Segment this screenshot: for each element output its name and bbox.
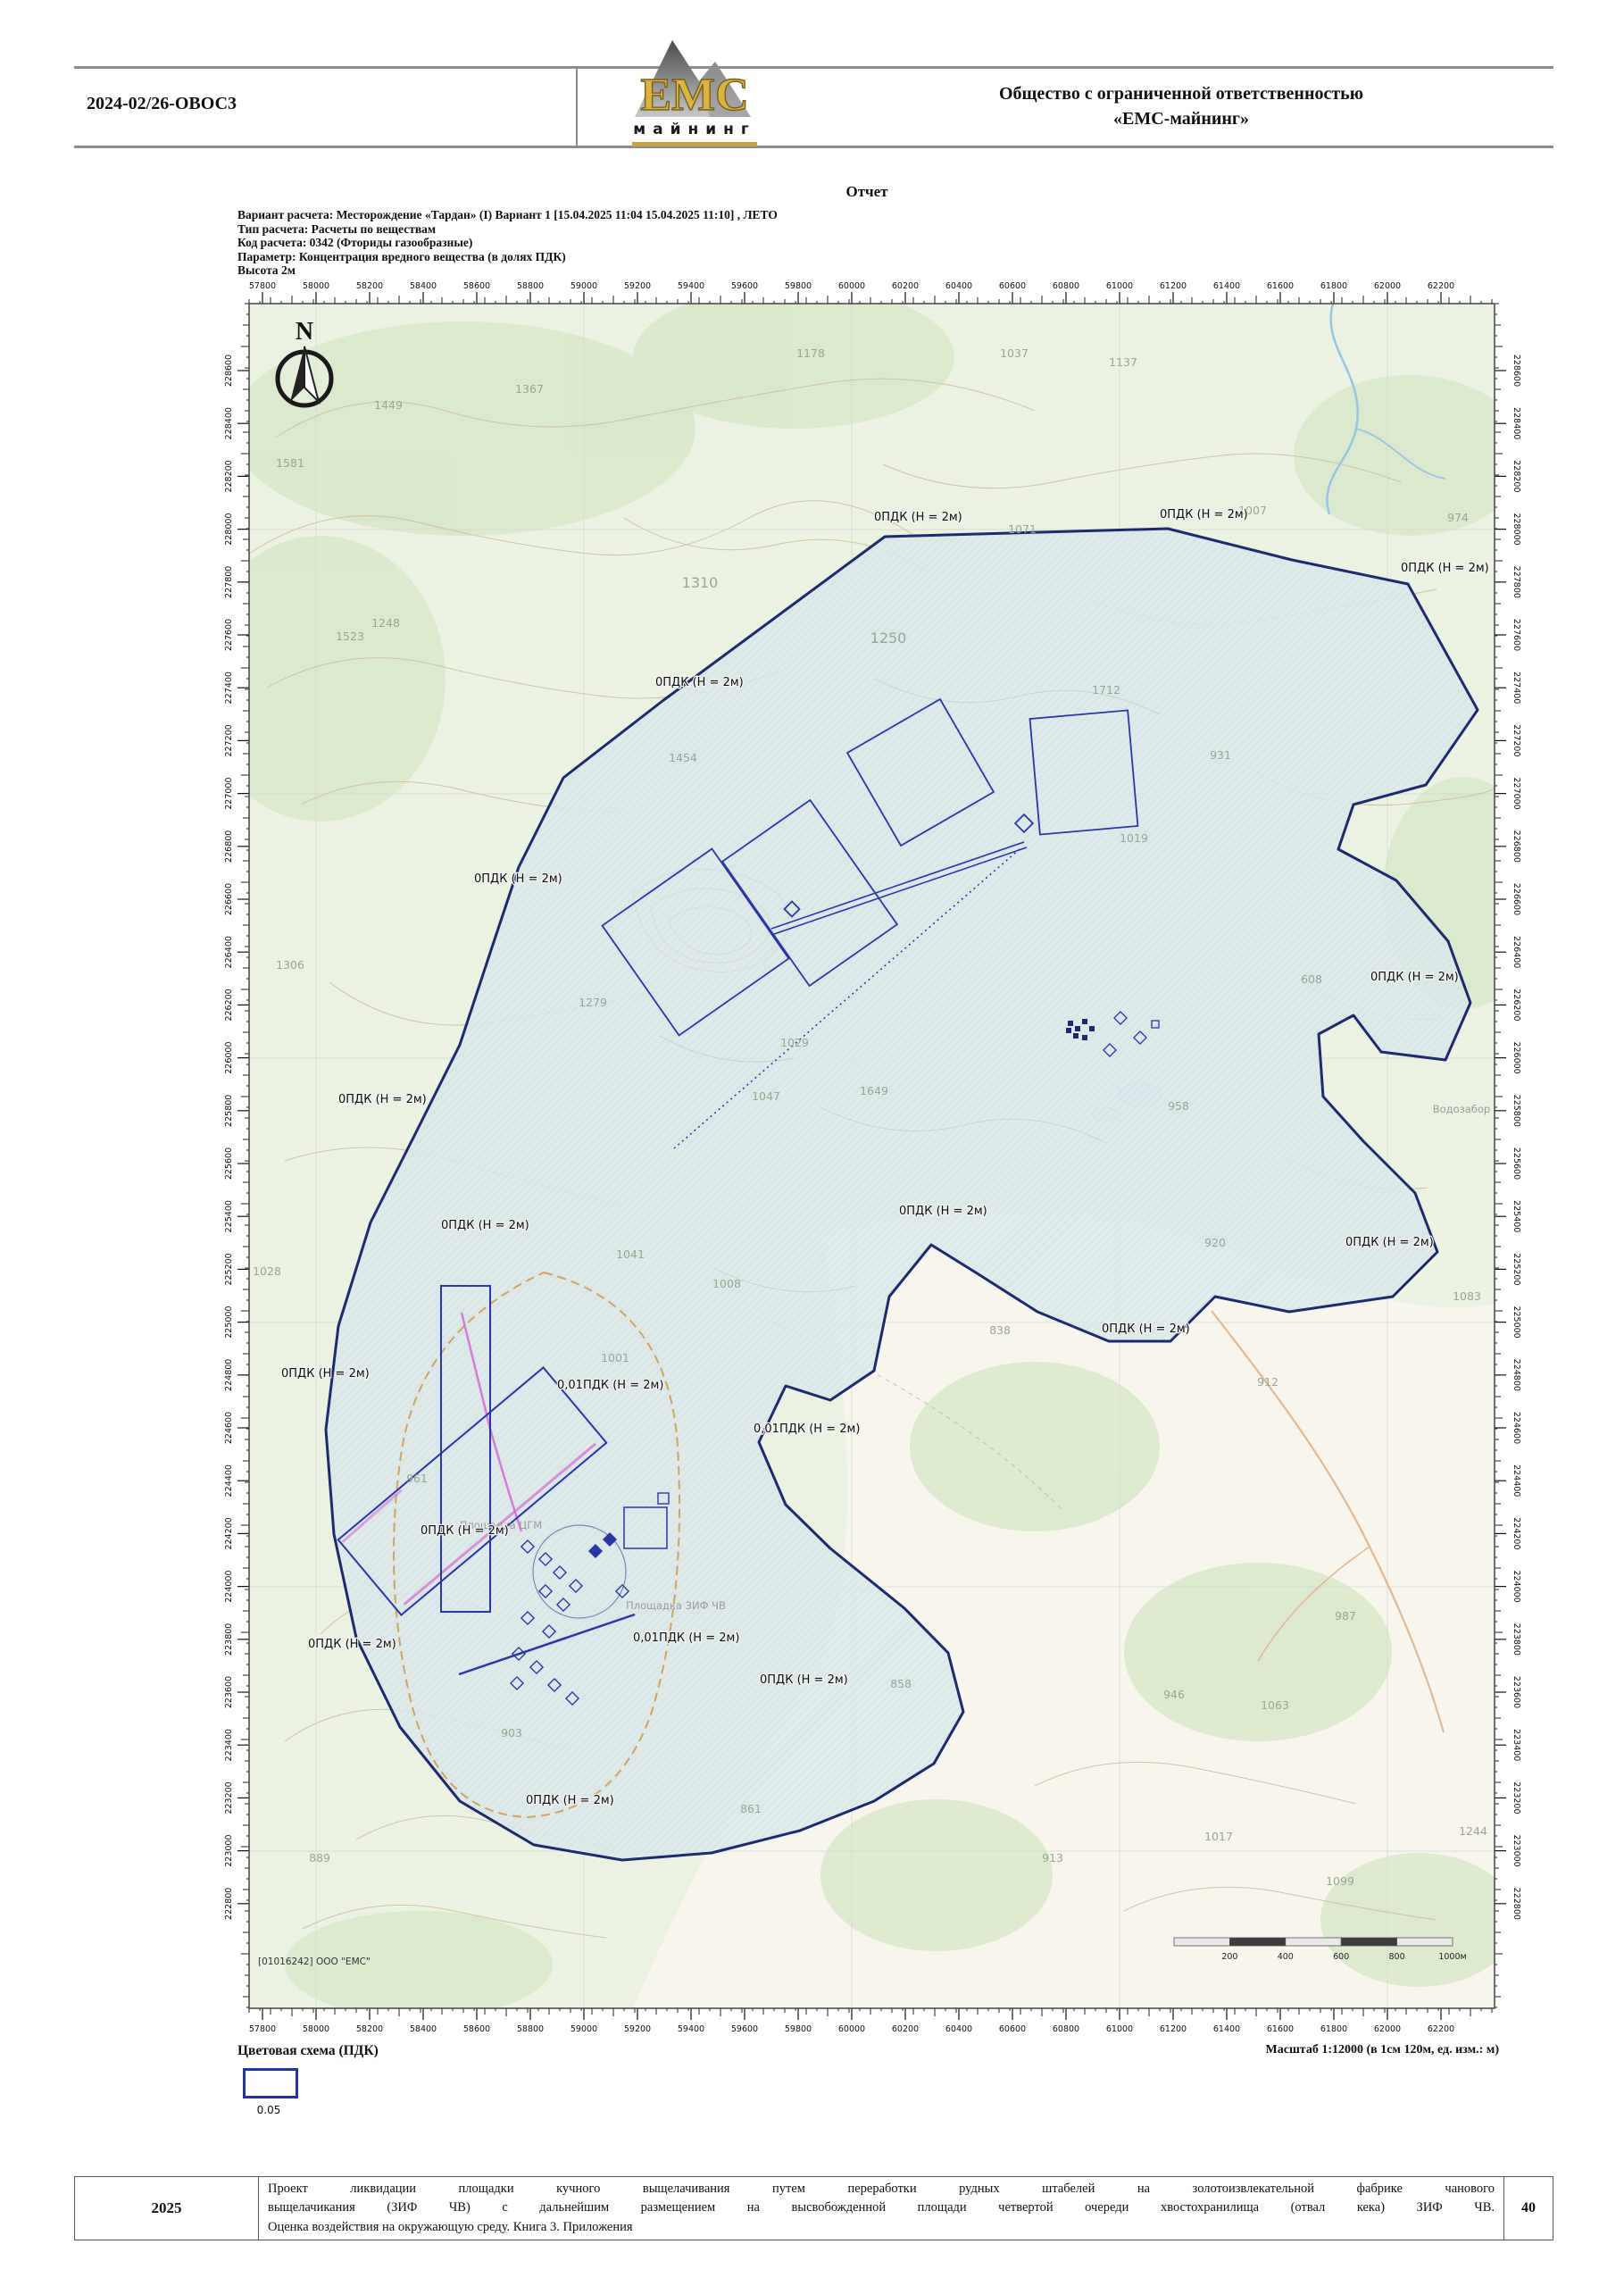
axis-tick-label: 227400 xyxy=(1512,672,1521,704)
legend-swatch xyxy=(243,2068,298,2098)
axis-tick-label: 224200 xyxy=(1512,1517,1521,1549)
axis-tick-label: 227200 xyxy=(224,724,234,756)
axis-tick-label: 223800 xyxy=(1512,1623,1521,1656)
axis-tick-label: 225800 xyxy=(224,1095,234,1127)
axis-tick-label: 227600 xyxy=(1512,619,1521,651)
elevation-label: 1017 xyxy=(1204,1830,1233,1843)
isoline-label: 0,01ПДК (Н = 2м) xyxy=(754,1422,860,1436)
axis-tick-label: 61400 xyxy=(1213,281,1240,291)
isoline-label: 0ПДК (Н = 2м) xyxy=(1370,971,1459,984)
logo-text: ЕМС xyxy=(640,70,748,121)
isoline-label: 0,01ПДК (Н = 2м) xyxy=(557,1379,663,1392)
elevation-label: 1063 xyxy=(1261,1698,1289,1712)
elevation-label: 1712 xyxy=(1092,683,1120,697)
scale-bar-segment xyxy=(1397,1938,1453,1946)
axis-tick-label: 59800 xyxy=(785,281,812,291)
axis-tick-label: 224600 xyxy=(1512,1412,1521,1444)
axis-tick-label: 223000 xyxy=(1512,1834,1521,1866)
axis-tick-label: 60800 xyxy=(1053,281,1079,291)
axis-tick-label: 59000 xyxy=(570,2024,597,2034)
isoline-label: 0ПДК (Н = 2м) xyxy=(1102,1322,1190,1336)
axis-tick-label: 226800 xyxy=(224,830,234,863)
axis-tick-label: 227200 xyxy=(1512,724,1521,756)
param-type: Тип расчета: Расчеты по веществам xyxy=(237,222,778,237)
axis-tick-label: 59200 xyxy=(624,2024,651,2034)
axis-tick-label: 228600 xyxy=(224,355,234,387)
axis-tick-label: 60200 xyxy=(892,2024,919,2034)
axis-tick-label: 227400 xyxy=(224,672,234,704)
isoline-label: 0ПДК (Н = 2м) xyxy=(760,1673,848,1687)
elevation-label: 1310 xyxy=(682,574,719,591)
feature-label: Водозабор xyxy=(1433,1103,1491,1115)
scale-bar-label: 600 xyxy=(1333,1952,1349,1962)
scale-bar-label: 400 xyxy=(1278,1952,1294,1962)
elevation-label: 1028 xyxy=(253,1264,281,1278)
axis-tick-label: 60600 xyxy=(999,281,1026,291)
axis-tick-label: 57800 xyxy=(249,2024,276,2034)
elevation-label: 1037 xyxy=(1000,346,1029,360)
elevation-label: 958 xyxy=(1168,1099,1189,1113)
axis-tick-label: 226200 xyxy=(224,989,234,1021)
elevation-label: 1029 xyxy=(780,1036,809,1049)
axis-tick-label: 226000 xyxy=(224,1041,234,1073)
page-footer: 2025 Проект ликвидации площадки кучного … xyxy=(74,2176,1553,2240)
axis-tick-label: 223600 xyxy=(1512,1676,1521,1708)
elevation-label: 912 xyxy=(1257,1375,1278,1389)
axis-tick-label: 225000 xyxy=(1512,1306,1521,1338)
axis-tick-label: 58000 xyxy=(303,281,329,291)
company-name: Общество с ограниченной ответственностью… xyxy=(878,81,1485,131)
axis-tick-label: 224000 xyxy=(224,1570,234,1602)
axis-tick-label: 223400 xyxy=(1512,1729,1521,1761)
axis-tick-label: 58200 xyxy=(356,2024,383,2034)
elevation-label: 974 xyxy=(1447,511,1469,524)
axis-tick-label: 61000 xyxy=(1106,281,1133,291)
axis-tick-label: 223200 xyxy=(224,1781,234,1814)
axis-tick-label: 59200 xyxy=(624,281,651,291)
axis-tick-label: 60800 xyxy=(1053,2024,1079,2034)
elevation-label: 1008 xyxy=(712,1277,741,1290)
footer-line-1: Проект ликвидации площадки кучного выщел… xyxy=(268,2180,1495,2198)
topographic-map: 5780057800580005800058200582005840058400… xyxy=(205,263,1545,2076)
elevation-label: 913 xyxy=(1042,1851,1063,1865)
scale-bar-segment xyxy=(1174,1938,1229,1946)
axis-tick-label: 225800 xyxy=(1512,1095,1521,1127)
isoline-label: 0ПДК (Н = 2м) xyxy=(308,1638,396,1651)
axis-tick-label: 224000 xyxy=(1512,1570,1521,1602)
axis-tick-label: 223000 xyxy=(224,1834,234,1866)
logo-subtitle: майнинг xyxy=(610,121,779,138)
elevation-label: 931 xyxy=(1210,748,1231,762)
axis-tick-label: 226600 xyxy=(224,883,234,915)
axis-tick-label: 227800 xyxy=(1512,566,1521,598)
axis-tick-label: 60400 xyxy=(945,281,972,291)
logo-gold-bar xyxy=(632,142,757,146)
elevation-label: 1019 xyxy=(1120,831,1148,845)
scale-bar-segment xyxy=(1286,1938,1341,1946)
feature-label: Площадка ЗИФ ЧВ xyxy=(626,1599,726,1612)
axis-tick-label: 228600 xyxy=(1512,355,1521,387)
isoline-label: 0ПДК (Н = 2м) xyxy=(421,1524,509,1538)
axis-tick-label: 59600 xyxy=(731,2024,758,2034)
isoline-label: 0ПДК (Н = 2м) xyxy=(526,1794,614,1807)
axis-tick-label: 59000 xyxy=(570,281,597,291)
isoline-label: 0ПДК (Н = 2м) xyxy=(1345,1236,1434,1249)
axis-tick-label: 60600 xyxy=(999,2024,1026,2034)
axis-tick-label: 61800 xyxy=(1320,2024,1347,2034)
axis-tick-label: 228200 xyxy=(1512,460,1521,492)
axis-tick-label: 224200 xyxy=(224,1517,234,1549)
elevation-label: 1001 xyxy=(601,1351,629,1364)
axis-tick-label: 222800 xyxy=(1512,1888,1521,1920)
scale-bar-segment xyxy=(1229,1938,1285,1946)
dispersion-map: 5780057800580005800058200582005840058400… xyxy=(205,263,1545,2076)
elevation-label: 1306 xyxy=(276,958,304,972)
axis-tick-label: 62200 xyxy=(1428,2024,1454,2034)
isoline-label: 0ПДК (Н = 2м) xyxy=(1160,508,1248,521)
elevation-label: 987 xyxy=(1335,1609,1356,1623)
isoline-label: 0ПДК (Н = 2м) xyxy=(1401,562,1489,575)
axis-tick-label: 228000 xyxy=(224,513,234,545)
elevation-label: 946 xyxy=(1163,1688,1185,1701)
map-scale-text: Масштаб 1:12000 (в 1см 120м, ед. изм.: м… xyxy=(1266,2043,1500,2057)
isoline-label: 0ПДК (Н = 2м) xyxy=(874,511,962,524)
axis-tick-label: 225400 xyxy=(1512,1200,1521,1232)
axis-tick-label: 225000 xyxy=(224,1306,234,1338)
elevation-label: 1449 xyxy=(374,398,403,412)
scale-bar-label: 800 xyxy=(1389,1952,1405,1962)
scale-bar-label: 1000м xyxy=(1438,1952,1466,1962)
document-code: 2024-02/26-ОВОС3 xyxy=(87,94,237,114)
axis-tick-label: 62000 xyxy=(1374,2024,1401,2034)
axis-tick-label: 58800 xyxy=(517,2024,544,2034)
axis-tick-label: 224800 xyxy=(224,1359,234,1391)
elevation-label: 920 xyxy=(1204,1236,1226,1249)
axis-tick-label: 226600 xyxy=(1512,883,1521,915)
elevation-label: 858 xyxy=(890,1677,912,1690)
param-parameter: Параметр: Концентрация вредного вещества… xyxy=(237,250,778,264)
elevation-label: 1250 xyxy=(870,630,907,647)
compass-north-label: N xyxy=(296,318,313,346)
axis-tick-label: 225600 xyxy=(224,1147,234,1180)
axis-tick-label: 223400 xyxy=(224,1729,234,1761)
elevation-label: 1454 xyxy=(669,751,697,764)
axis-tick-label: 227600 xyxy=(224,619,234,651)
axis-tick-label: 58000 xyxy=(303,2024,329,2034)
axis-tick-label: 228400 xyxy=(1512,407,1521,439)
isoline-label: 0ПДК (Н = 2м) xyxy=(474,872,562,886)
axis-tick-label: 227000 xyxy=(1512,777,1521,809)
axis-tick-label: 59600 xyxy=(731,281,758,291)
axis-tick-label: 223800 xyxy=(224,1623,234,1656)
map-credit: [01016242] ООО "ЕМС" xyxy=(258,1956,371,1967)
elevation-label: 1649 xyxy=(860,1084,888,1097)
isoline-label: 0,01ПДК (Н = 2м) xyxy=(633,1631,739,1645)
company-line1: Общество с ограниченной ответственностью xyxy=(878,81,1485,106)
axis-tick-label: 58600 xyxy=(463,281,490,291)
axis-tick-label: 223200 xyxy=(1512,1781,1521,1814)
axis-tick-label: 61200 xyxy=(1160,2024,1187,2034)
axis-tick-label: 225200 xyxy=(1512,1253,1521,1285)
axis-tick-label: 58400 xyxy=(410,2024,437,2034)
axis-tick-label: 61600 xyxy=(1267,281,1294,291)
axis-tick-label: 225400 xyxy=(224,1200,234,1232)
elevation-label: 608 xyxy=(1301,972,1322,986)
axis-tick-label: 58200 xyxy=(356,281,383,291)
axis-tick-label: 225200 xyxy=(224,1253,234,1285)
axis-tick-label: 228200 xyxy=(224,460,234,492)
axis-tick-label: 62000 xyxy=(1374,281,1401,291)
elevation-label: 889 xyxy=(309,1851,330,1865)
axis-tick-label: 225600 xyxy=(1512,1147,1521,1180)
axis-tick-label: 223600 xyxy=(224,1676,234,1708)
axis-tick-label: 60000 xyxy=(838,281,865,291)
isoline-label: 0ПДК (Н = 2м) xyxy=(441,1219,529,1232)
axis-tick-label: 59400 xyxy=(678,281,704,291)
elevation-label: 1099 xyxy=(1326,1874,1354,1888)
axis-tick-label: 58800 xyxy=(517,281,544,291)
axis-tick-label: 60200 xyxy=(892,281,919,291)
axis-tick-label: 59800 xyxy=(785,2024,812,2034)
company-logo: ЕМС майнинг xyxy=(610,35,779,151)
axis-tick-label: 227800 xyxy=(224,566,234,598)
elevation-label: 838 xyxy=(989,1323,1011,1337)
elevation-label: 1041 xyxy=(616,1247,645,1261)
elevation-label: 1047 xyxy=(752,1089,780,1103)
axis-tick-label: 224400 xyxy=(1512,1464,1521,1497)
param-code: Код расчета: 0342 (Фториды газообразные) xyxy=(237,236,778,250)
axis-tick-label: 224400 xyxy=(224,1464,234,1497)
scale-bar-label: 200 xyxy=(1221,1952,1237,1962)
axis-tick-label: 61400 xyxy=(1213,2024,1240,2034)
page-number: 40 xyxy=(1504,2177,1553,2240)
elevation-label: 1248 xyxy=(371,616,400,630)
elevation-label: 961 xyxy=(406,1472,428,1485)
report-page: 2024-02/26-ОВОС3 ЕМС майнинг Общество с … xyxy=(0,0,1624,2286)
elevation-label: 1244 xyxy=(1459,1824,1487,1838)
elevation-label: 1083 xyxy=(1453,1289,1481,1303)
elevation-label: 1581 xyxy=(276,456,304,470)
scale-bar-segment xyxy=(1341,1938,1396,1946)
elevation-label: 1137 xyxy=(1109,355,1137,369)
page-header: 2024-02/26-ОВОС3 ЕМС майнинг Общество с … xyxy=(74,66,1553,148)
elevation-label: 1279 xyxy=(579,996,607,1009)
axis-tick-label: 60000 xyxy=(838,2024,865,2034)
axis-tick-label: 228400 xyxy=(224,407,234,439)
elevation-label: 903 xyxy=(501,1726,522,1740)
elevation-label: 1178 xyxy=(796,346,825,360)
legend-title: Цветовая схема (ПДК) xyxy=(237,2043,379,2059)
axis-tick-label: 224600 xyxy=(224,1412,234,1444)
isoline-label: 0ПДК (Н = 2м) xyxy=(338,1093,427,1106)
axis-tick-label: 59400 xyxy=(678,2024,704,2034)
footer-line-2: выщелачикания (ЗИФ ЧВ) с дальнейшим разм… xyxy=(268,2198,1495,2217)
footer-line-3: Оценка воздействия на окружающую среду. … xyxy=(268,2218,1495,2237)
isoline-label: 0ПДК (Н = 2м) xyxy=(899,1205,987,1218)
axis-tick-label: 61000 xyxy=(1106,2024,1133,2034)
axis-tick-label: 224800 xyxy=(1512,1359,1521,1391)
axis-tick-label: 226000 xyxy=(1512,1041,1521,1073)
axis-tick-label: 226400 xyxy=(1512,936,1521,968)
footer-project-description: Проект ликвидации площадки кучного выщел… xyxy=(259,2177,1504,2240)
axis-tick-label: 58400 xyxy=(410,281,437,291)
param-variant: Вариант расчета: Месторождение «Тардан» … xyxy=(237,208,778,222)
axis-tick-label: 61600 xyxy=(1267,2024,1294,2034)
mountain-logo-icon: ЕМС xyxy=(610,35,779,121)
axis-tick-label: 57800 xyxy=(249,281,276,291)
header-divider xyxy=(576,69,578,146)
footer-year: 2025 xyxy=(75,2177,259,2240)
axis-tick-label: 226200 xyxy=(1512,989,1521,1021)
axis-tick-label: 62200 xyxy=(1428,281,1454,291)
elevation-label: 1367 xyxy=(515,382,544,396)
axis-tick-label: 58600 xyxy=(463,2024,490,2034)
legend-value: 0.05 xyxy=(237,2104,300,2116)
axis-tick-label: 61800 xyxy=(1320,281,1347,291)
color-scheme-legend: Цветовая схема (ПДК) 0.05 xyxy=(237,2043,379,2116)
elevation-label: 1071 xyxy=(1008,522,1037,536)
elevation-label: 861 xyxy=(740,1802,762,1815)
axis-tick-label: 222800 xyxy=(224,1888,234,1920)
axis-tick-label: 61200 xyxy=(1160,281,1187,291)
axis-tick-label: 228000 xyxy=(1512,513,1521,545)
isoline-label: 0ПДК (Н = 2м) xyxy=(655,676,744,689)
isoline-label: 0ПДК (Н = 2м) xyxy=(281,1367,370,1381)
company-line2: «ЕМС-майнинг» xyxy=(878,106,1485,131)
axis-tick-label: 227000 xyxy=(224,777,234,809)
report-title: Отчет xyxy=(688,183,1045,201)
axis-tick-label: 60400 xyxy=(945,2024,972,2034)
map-canvas: N 11781037113714491367158110079741071124… xyxy=(205,286,1544,2018)
axis-tick-label: 226400 xyxy=(224,936,234,968)
axis-tick-label: 226800 xyxy=(1512,830,1521,863)
elevation-label: 1523 xyxy=(336,630,364,643)
